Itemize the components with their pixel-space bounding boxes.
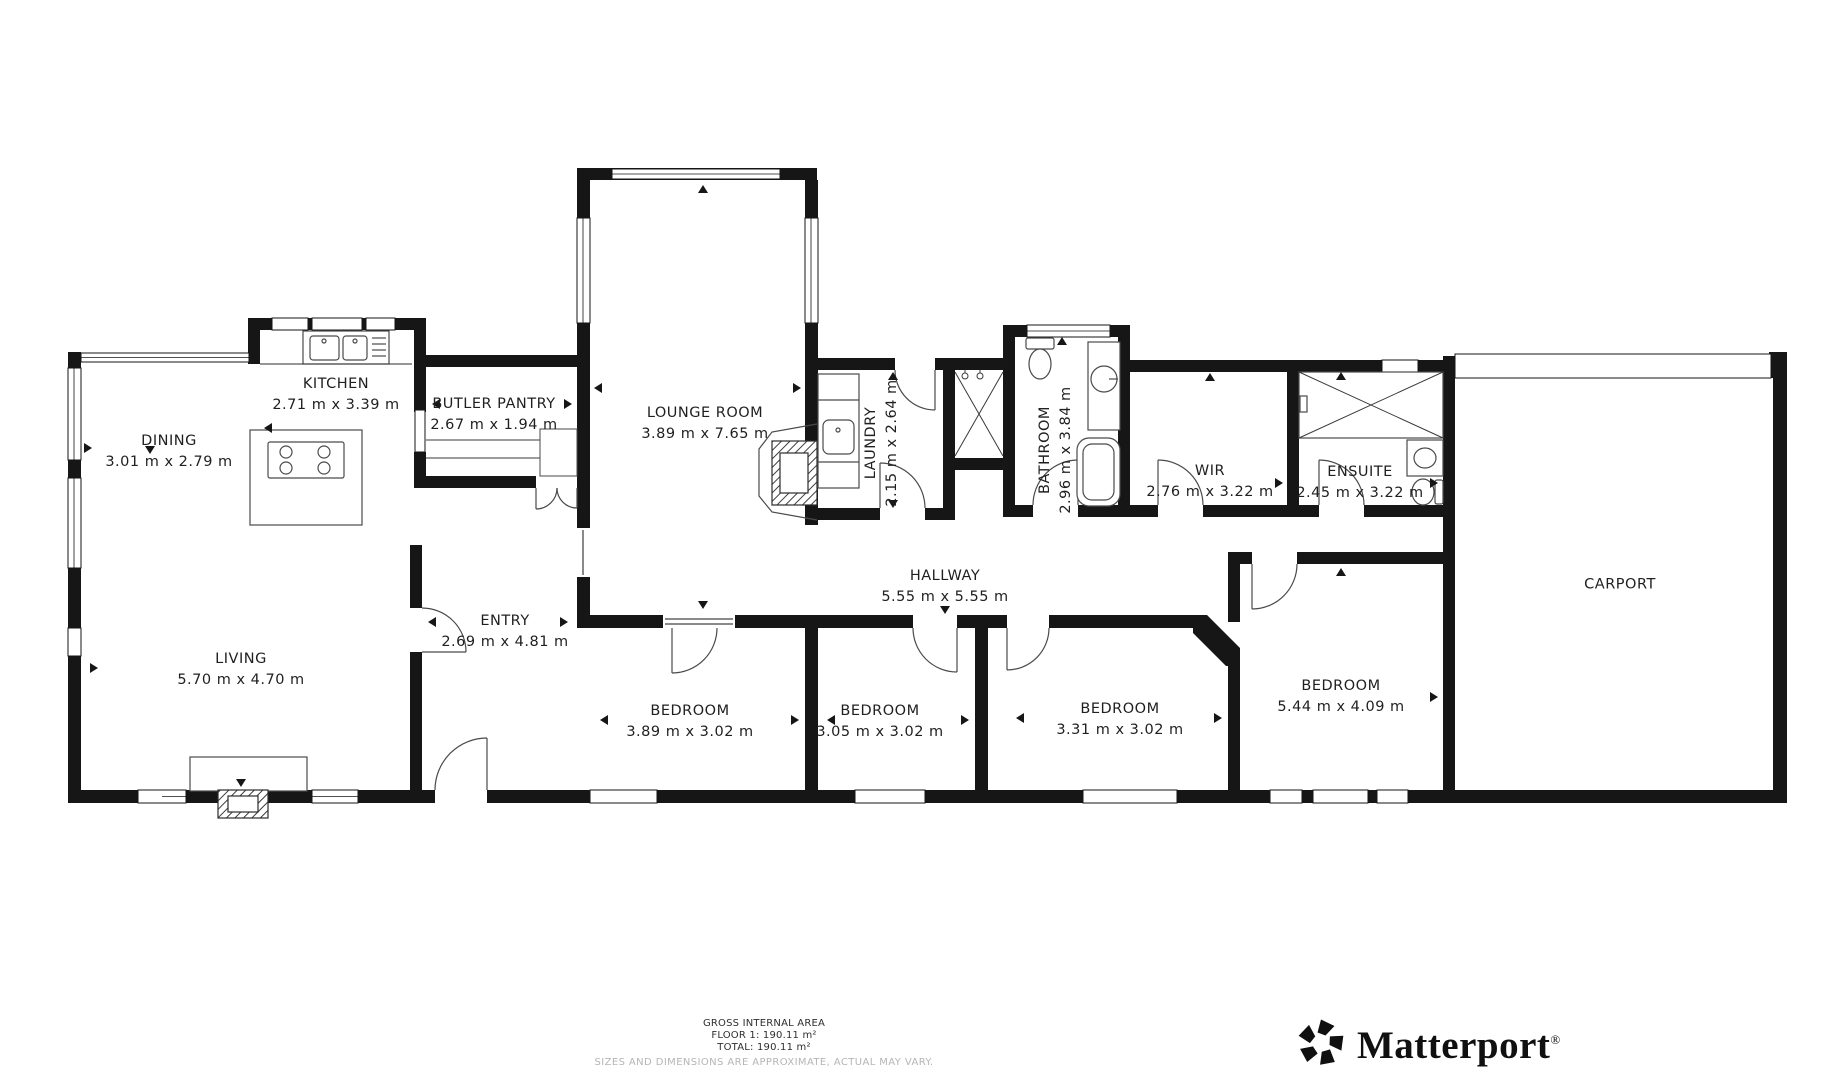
matterport-wordmark: Matterport®: [1357, 1014, 1561, 1072]
bathroom-vanity: [1088, 342, 1120, 430]
room-label-bedroom-4: BEDROOM5.44 m x 4.09 m: [1277, 676, 1404, 718]
floorplan-page: KITCHEN2.71 m x 3.39 m DINING3.01 m x 2.…: [0, 0, 1838, 1080]
room-label-bedroom-3: BEDROOM3.31 m x 3.02 m: [1056, 699, 1183, 741]
room-label-kitchen: KITCHEN2.71 m x 3.39 m: [272, 374, 399, 416]
laundry-bench-sink: [818, 374, 859, 488]
room-label-butler-pantry: BUTLER PANTRY2.67 m x 1.94 m: [430, 394, 557, 436]
room-label-hallway: HALLWAY5.55 m x 5.55 m: [881, 566, 1008, 608]
room-label-laundry: LAUNDRY2.15 m x 2.64 m: [861, 379, 903, 506]
linen-cupboard: [955, 370, 1003, 456]
room-label-bedroom-2: BEDROOM3.05 m x 3.02 m: [816, 701, 943, 743]
room-label-ensuite: ENSUITE2.45 m x 3.22 m: [1296, 462, 1423, 504]
total-area-line: TOTAL: 190.11 m²: [595, 1042, 934, 1054]
matterport-pinwheel-icon: [1296, 1018, 1346, 1068]
living-fireplace: [190, 757, 307, 818]
cooktop: [268, 442, 344, 478]
bathroom-toilet: [1026, 338, 1054, 379]
room-label-entry: ENTRY2.69 m x 4.81 m: [441, 611, 568, 653]
room-label-bathroom: BATHROOM2.96 m x 3.84 m: [1035, 386, 1077, 513]
room-label-wir: WIR2.76 m x 3.22 m: [1146, 461, 1273, 503]
room-label-carport: CARPORT: [1584, 574, 1656, 595]
room-label-lounge-room: LOUNGE ROOM3.89 m x 7.65 m: [641, 403, 768, 445]
pantry-shelves: [426, 429, 577, 476]
floor-area-line: FLOOR 1: 190.11 m²: [595, 1030, 934, 1042]
matterport-logo: Matterport®: [1296, 1014, 1561, 1072]
carport-opening: [1455, 354, 1771, 378]
bathtub: [1077, 438, 1120, 506]
ensuite-shower: [1299, 372, 1443, 438]
room-label-dining: DINING3.01 m x 2.79 m: [105, 431, 232, 473]
room-label-living: LIVING5.70 m x 4.70 m: [177, 649, 304, 691]
gross-internal-area-title: GROSS INTERNAL AREA: [595, 1018, 934, 1030]
footer-area-summary: GROSS INTERNAL AREA FLOOR 1: 190.11 m² T…: [595, 1018, 934, 1069]
room-label-bedroom-1: BEDROOM3.89 m x 3.02 m: [626, 701, 753, 743]
disclaimer-text: SIZES AND DIMENSIONS ARE APPROXIMATE, AC…: [595, 1057, 934, 1069]
floor-plan-drawing: [0, 0, 1838, 1080]
kitchen-sink: [260, 331, 412, 364]
